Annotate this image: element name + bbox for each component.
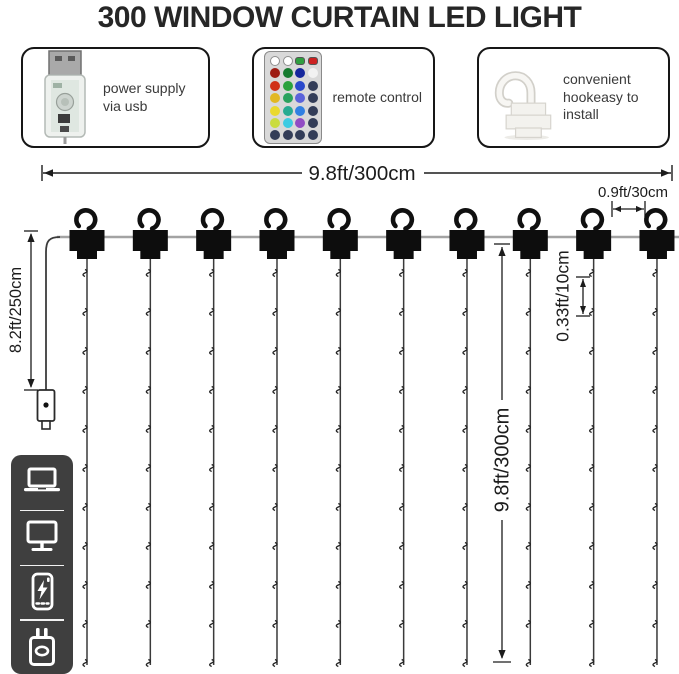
hook-icon: [76, 210, 95, 228]
hook-icon: [266, 210, 285, 228]
usb-connector-dot: [43, 402, 48, 407]
hook-body: [70, 230, 105, 259]
device-cell: [11, 510, 73, 565]
hook-body: [513, 230, 548, 259]
remote-button: [308, 68, 318, 78]
usb-wall-charger-icon: [20, 625, 64, 669]
light-strands: [70, 210, 675, 666]
hook-body: [196, 230, 231, 259]
side-height-dimension: [24, 231, 38, 390]
hook-body: [323, 230, 358, 259]
power-bank-icon: [20, 570, 64, 614]
remote-button: [270, 68, 280, 78]
led-bulb: [590, 660, 594, 667]
hook-body: [386, 230, 421, 259]
remote-button: [270, 81, 280, 91]
curtain-diagram-canvas: 9.8ft/300cm 0.9ft/30cm 8.2: [0, 160, 679, 674]
led-bulb: [463, 660, 467, 667]
total-width-label: 9.8ft/300cm: [308, 162, 415, 185]
device-cell: [11, 455, 73, 510]
remote-button: [295, 68, 305, 78]
led-bulb: [400, 660, 404, 667]
remote-button: [308, 118, 318, 128]
remote-button: [295, 118, 305, 128]
hook-icon: [456, 210, 475, 228]
led-spacing-label: 0.33ft/10cm: [553, 250, 573, 341]
hook-icon: [583, 210, 602, 228]
remote-button: [283, 93, 293, 103]
hook-icon: [520, 210, 539, 228]
hook-body: [449, 230, 484, 259]
remote-button: [283, 118, 293, 128]
hanging-hook-icon: [489, 50, 561, 146]
hook-icon: [646, 210, 665, 228]
remote-button: [295, 130, 305, 140]
remote-button: [295, 81, 305, 91]
remote-button: [283, 56, 293, 66]
device-cell: [11, 565, 73, 620]
product-title: 300 WINDOW CURTAIN LED LIGHT: [0, 1, 679, 35]
dimension-diagram: 9.8ft/300cm 0.9ft/30cm 8.2: [0, 160, 679, 674]
remote-button: [270, 118, 280, 128]
remote-button: [308, 81, 318, 91]
remote-button: [295, 106, 305, 116]
remote-button: [295, 57, 305, 65]
product-infographic: 300 WINDOW CURTAIN LED LIGHT power suppl…: [0, 0, 679, 674]
remote-button: [308, 93, 318, 103]
led-bulb: [273, 660, 277, 667]
hook-icon: [203, 210, 222, 228]
led-bulb: [83, 660, 87, 667]
led-bulb: [336, 660, 340, 667]
feature-label: convenient hookeasy to install: [563, 71, 662, 125]
feature-box-remote: remote control: [252, 47, 435, 148]
remote-button: [270, 93, 280, 103]
hook-icon: [140, 210, 159, 228]
usb-connector-tip: [42, 421, 50, 429]
usb-plug-icon: [33, 50, 99, 146]
hook-icon: [393, 210, 412, 228]
feature-box-hook: convenient hookeasy to install: [477, 47, 670, 148]
remote-button: [283, 81, 293, 91]
device-compatibility-strip: [11, 455, 73, 674]
remote-button: [295, 93, 305, 103]
led-bulb: [210, 660, 214, 667]
feature-label: remote control: [332, 89, 421, 107]
drop-height-label: 9.8ft/300cm: [492, 408, 514, 513]
remote-buttons: [270, 56, 321, 140]
feature-boxes: power supply via usb remote control conv…: [21, 47, 670, 148]
remote-button: [308, 106, 318, 116]
usb-cable: [46, 237, 60, 390]
device-cell: [11, 619, 73, 674]
led-bulb: [653, 660, 657, 667]
hook-body: [259, 230, 294, 259]
laptop-icon: [20, 460, 64, 504]
remote-button: [270, 106, 280, 116]
remote-button: [283, 106, 293, 116]
remote-button: [308, 57, 318, 65]
remote-button: [283, 130, 293, 140]
hook-body: [639, 230, 674, 259]
remote-button: [270, 56, 280, 66]
feature-box-usb-power: power supply via usb: [21, 47, 210, 148]
remote-button: [270, 130, 280, 140]
remote-button: [283, 68, 293, 78]
hook-body: [576, 230, 611, 259]
hook-spacing-label: 0.9ft/30cm: [598, 184, 668, 201]
hook-icon: [330, 210, 349, 228]
remote-button: [308, 130, 318, 140]
desktop-monitor-icon: [20, 515, 64, 559]
feature-label: power supply via usb: [103, 80, 202, 116]
side-height-label: 8.2ft/250cm: [7, 267, 25, 353]
remote-control-icon: [264, 51, 322, 144]
led-bulb: [146, 660, 150, 667]
led-bulb: [526, 660, 530, 667]
hook-body: [133, 230, 168, 259]
